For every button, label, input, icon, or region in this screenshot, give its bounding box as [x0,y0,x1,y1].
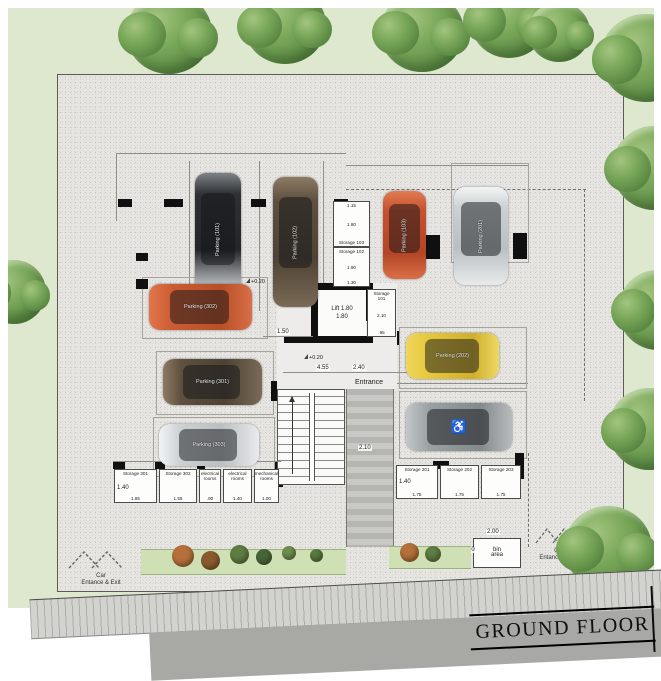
parking-label: Parking (201) [454,187,508,285]
wall-segment [113,461,125,469]
parking-label: Parking (102) [273,177,318,307]
dimension-line [283,372,423,373]
wall-segment [118,199,132,207]
wall-segment [136,253,148,261]
car-parking-301: Parking (301) [163,359,262,405]
dimension-label: 1.55 [174,496,183,501]
bush [310,549,323,562]
storage-label: Storage 301 [123,471,148,476]
car-parking-103: Parking (103) [383,191,426,279]
storage-label: Storage 203 [488,467,513,472]
room-label: electrical rooms [201,471,219,481]
storage-room-103: 1.15 1.80 Storage 103 [333,201,370,247]
wheelchair-icon [406,403,512,451]
bush [201,551,220,570]
parking-label: Parking (303) [159,424,259,466]
storage-room-202: Storage 202 1.75 [440,465,479,499]
dimension-label: 1.90 [347,265,356,270]
tree [244,8,326,64]
entrance-text: Entance & Exit [81,580,120,586]
building-outline-line [116,153,117,221]
parking-label: Parking (302) [149,284,252,330]
site-surroundings: Lift 1.80 1.80 1.15 1.80 Storage 103 Sto… [8,8,654,608]
dimension-label: 1.30 [347,280,356,285]
storage-room-102: Storage 102 1.90 1.30 [333,247,370,287]
dimension-label: 2.00 [486,529,500,535]
bin-area: bin area [473,538,521,568]
room-label: electrical rooms [225,471,250,481]
dimension-label: .95 [378,330,384,335]
car-entrance-label-left: Car Entance & Exit [70,573,132,587]
dimension-label: 1.00 [262,496,271,501]
dimension-label: .90 [207,496,213,501]
electrical-room: electrical rooms .90 [199,469,221,503]
bin-area-label: area [491,553,503,558]
dimension-label: 1.75 [497,492,506,497]
car-parking-303: Parking (303) [159,424,259,466]
boundary-dashed-line [528,453,529,547]
entrance-walkway [346,389,394,547]
dimension-label: 1.85 [131,496,140,501]
car-parking-201: Parking (201) [454,187,508,285]
dimension-label: 1.75 [413,492,422,497]
bush [256,549,272,565]
bush [282,546,296,560]
parking-label: Parking (202) [406,333,499,379]
tree [8,260,46,324]
parking-label: Parking (103) [383,191,426,279]
storage-label: Storage 102 [339,249,364,254]
ground-floor-plan: Lift 1.80 1.80 1.15 1.80 Storage 103 Sto… [57,74,624,592]
storage-room-203: Storage 203 1.75 [481,465,521,499]
wall-segment [513,233,527,259]
car-parking-202: Parking (202) [406,333,499,379]
lift: Lift 1.80 1.80 [318,290,366,336]
wall-segment [426,235,440,259]
dimension-label: 1.75 [455,492,464,497]
storage-label: Storage 201 [404,467,429,472]
stair-direction-arrow [292,397,293,474]
entrance-label: Entrance [354,380,384,386]
lift-label: Lift 1.80 [331,306,352,313]
bush [400,543,419,562]
level-marker: +0.20 [304,354,323,361]
dimension-label: 2.10 [377,313,386,318]
tree [126,8,212,74]
mechanical-room: mechanical rooms 1.00 [254,469,279,503]
dimension-label: 2.10 [358,445,372,451]
bush [230,545,249,564]
storage-room-302: Storage 302 1.55 [159,469,197,503]
storage-label: Storage 202 [447,467,472,472]
dimension-label: 2.40 [352,365,366,371]
dimension-label: 1.80 [347,222,356,227]
dimension-line [263,336,313,337]
entrance-text: Car [96,573,106,579]
storage-label: Storage 101 [369,291,394,301]
storage-room-101: Storage 101 2.10 .95 [367,289,396,337]
page-title: GROUND FLOOR [475,612,650,643]
dimension-label: 1.40 [116,485,130,491]
bush [172,545,194,567]
wall-segment [164,199,183,207]
car-parking-accessible [406,403,512,451]
dimension-label: 4.55 [316,365,330,371]
lift-dimension: 1.80 [336,314,348,321]
dimension-label: 1.50 [276,329,290,335]
wall-segment [251,199,266,207]
tree [528,8,590,62]
car-entrance-arrow [66,547,130,571]
storage-label: Storage 302 [165,471,190,476]
tree [380,8,464,72]
building-outline-line [116,153,346,154]
room-label: mechanical rooms [255,471,278,481]
overhang-dashed-line [584,189,585,401]
wall-segment [136,279,148,289]
dimension-label: 1.15 [347,203,356,208]
staircase [277,389,345,485]
lift-wall [284,336,373,343]
electrical-room: electrical rooms 1.40 [223,469,252,503]
bush [425,546,441,562]
parking-label: Parking (301) [163,359,262,405]
dimension-label: 1.40 [398,479,412,485]
dimension-label: 1.40 [233,496,242,501]
storage-label: Storage 103 [339,240,364,245]
car-parking-302: Parking (302) [149,284,252,330]
car-parking-102: Parking (102) [273,177,318,307]
